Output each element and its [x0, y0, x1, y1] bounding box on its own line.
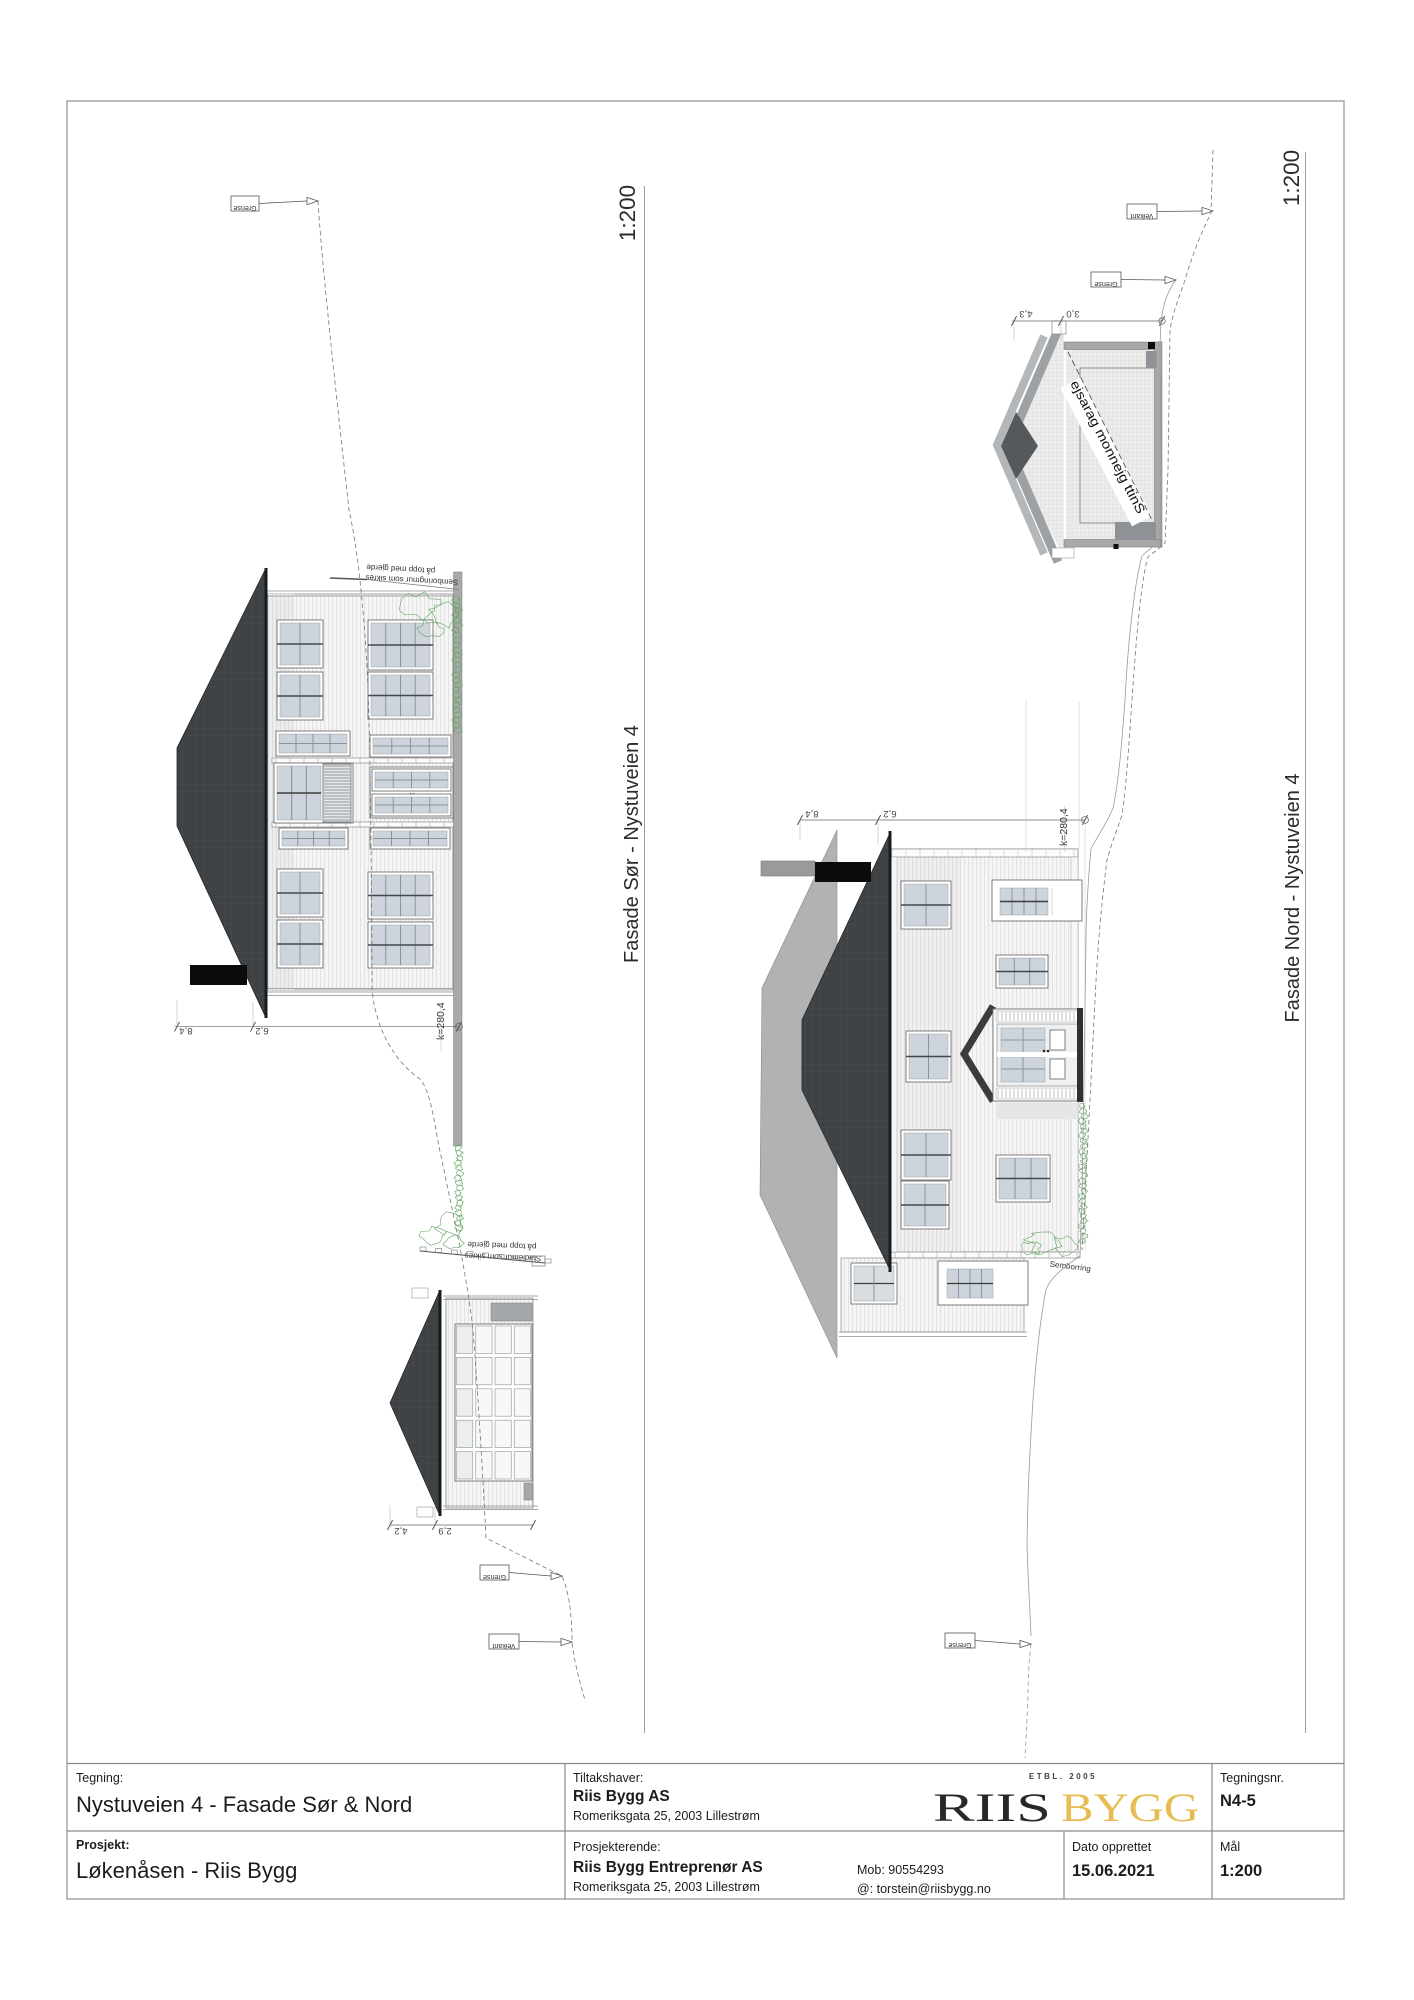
svg-text:3,0: 3,0: [1066, 308, 1079, 319]
svg-text:Mob: 90554293: Mob: 90554293: [857, 1863, 944, 1877]
svg-text:4,3: 4,3: [1019, 308, 1032, 319]
svg-text:Tegningsnr.: Tegningsnr.: [1220, 1771, 1284, 1785]
svg-text:Fasade Sør - Nystuveien 4: Fasade Sør - Nystuveien 4: [621, 725, 643, 963]
svg-text:N4-5: N4-5: [1220, 1792, 1256, 1810]
svg-text:↔: ↔: [409, 790, 416, 797]
svg-text:1:200: 1:200: [615, 185, 640, 241]
svg-text:Grense: Grense: [1094, 280, 1117, 287]
svg-text:Dato opprettet: Dato opprettet: [1072, 1840, 1152, 1854]
svg-text:6,2: 6,2: [255, 1025, 268, 1036]
svg-text:Veikant: Veikant: [1130, 212, 1153, 219]
svg-text:Grense: Grense: [233, 204, 256, 211]
svg-text:Riis Bygg Entreprenør AS: Riis Bygg Entreprenør AS: [573, 1859, 763, 1876]
svg-text:Løkenåsen - Riis Bygg: Løkenåsen - Riis Bygg: [76, 1858, 297, 1883]
svg-text:Riis Bygg AS: Riis Bygg AS: [573, 1788, 670, 1805]
svg-text:Prosjekterende:: Prosjekterende:: [573, 1840, 661, 1854]
svg-text:Tegning:: Tegning:: [76, 1771, 123, 1785]
svg-text:Nystuveien 4 - Fasade Sør & No: Nystuveien 4 - Fasade Sør & Nord: [76, 1792, 412, 1817]
svg-text:1:200: 1:200: [1220, 1862, 1262, 1880]
svg-text:ETBL. 2005: ETBL. 2005: [1029, 1772, 1097, 1781]
svg-text:15.06.2021: 15.06.2021: [1072, 1862, 1155, 1880]
svg-text:Romeriksgata 25, 2003 Lillestr: Romeriksgata 25, 2003 Lillestrøm: [573, 1809, 760, 1823]
svg-text:Fasade Nord - Nystuveien 4: Fasade Nord - Nystuveien 4: [1282, 773, 1304, 1022]
svg-text:Veikant: Veikant: [492, 1642, 515, 1649]
svg-text:8,4: 8,4: [805, 808, 818, 819]
svg-text:6,2: 6,2: [883, 808, 896, 819]
svg-text:Grense: Grense: [483, 1573, 506, 1580]
svg-text:1:200: 1:200: [1279, 150, 1304, 206]
svg-text:Romeriksgata 25, 2003 Lillestr: Romeriksgata 25, 2003 Lillestrøm: [573, 1880, 760, 1894]
svg-text:Prosjekt:: Prosjekt:: [76, 1838, 130, 1852]
svg-text:@: torstein@riisbygg.no: @: torstein@riisbygg.no: [857, 1882, 991, 1896]
svg-text:2,9: 2,9: [438, 1525, 451, 1536]
svg-text:k=280,4: k=280,4: [1058, 808, 1070, 846]
svg-text:BYGG: BYGG: [1061, 1785, 1199, 1830]
svg-text:Mål: Mål: [1220, 1840, 1240, 1854]
svg-text:8,4: 8,4: [179, 1025, 192, 1036]
svg-text:Grense: Grense: [948, 1641, 971, 1648]
svg-text:Tiltakshaver:: Tiltakshaver:: [573, 1771, 643, 1785]
svg-text:RIIS: RIIS: [933, 1785, 1051, 1830]
svg-text:4,2: 4,2: [394, 1525, 407, 1536]
